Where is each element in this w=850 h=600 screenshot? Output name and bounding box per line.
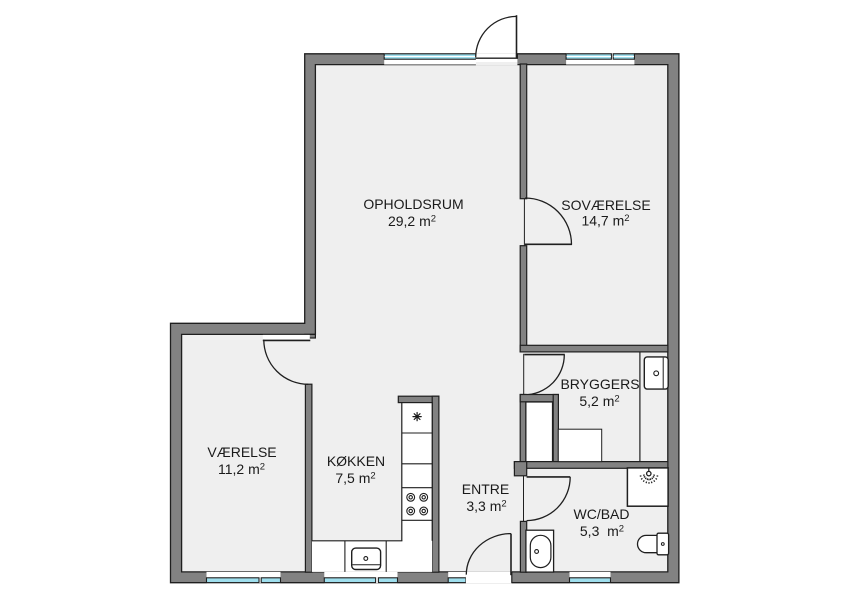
svg-text:SOVÆRELSE: SOVÆRELSE [561, 197, 650, 213]
svg-text:KØKKEN: KØKKEN [327, 453, 385, 469]
svg-text:VÆRELSE: VÆRELSE [207, 444, 276, 460]
svg-text:WC/BAD: WC/BAD [574, 506, 630, 522]
svg-text:BRYGGERS: BRYGGERS [560, 376, 639, 392]
svg-text:7,5 m2: 7,5 m2 [335, 470, 375, 486]
svg-text:14,7 m2: 14,7 m2 [581, 213, 629, 229]
svg-text:29,2 m2: 29,2 m2 [388, 213, 436, 229]
svg-text:3,3 m2: 3,3 m2 [466, 498, 506, 514]
svg-text:OPHOLDSRUM: OPHOLDSRUM [363, 196, 463, 212]
svg-text:11,2 m2: 11,2 m2 [218, 461, 265, 477]
svg-text:ENTRE: ENTRE [462, 481, 509, 497]
svg-text:5,3 m2: 5,3 m2 [580, 523, 624, 539]
svg-text:5,2 m2: 5,2 m2 [579, 393, 619, 409]
